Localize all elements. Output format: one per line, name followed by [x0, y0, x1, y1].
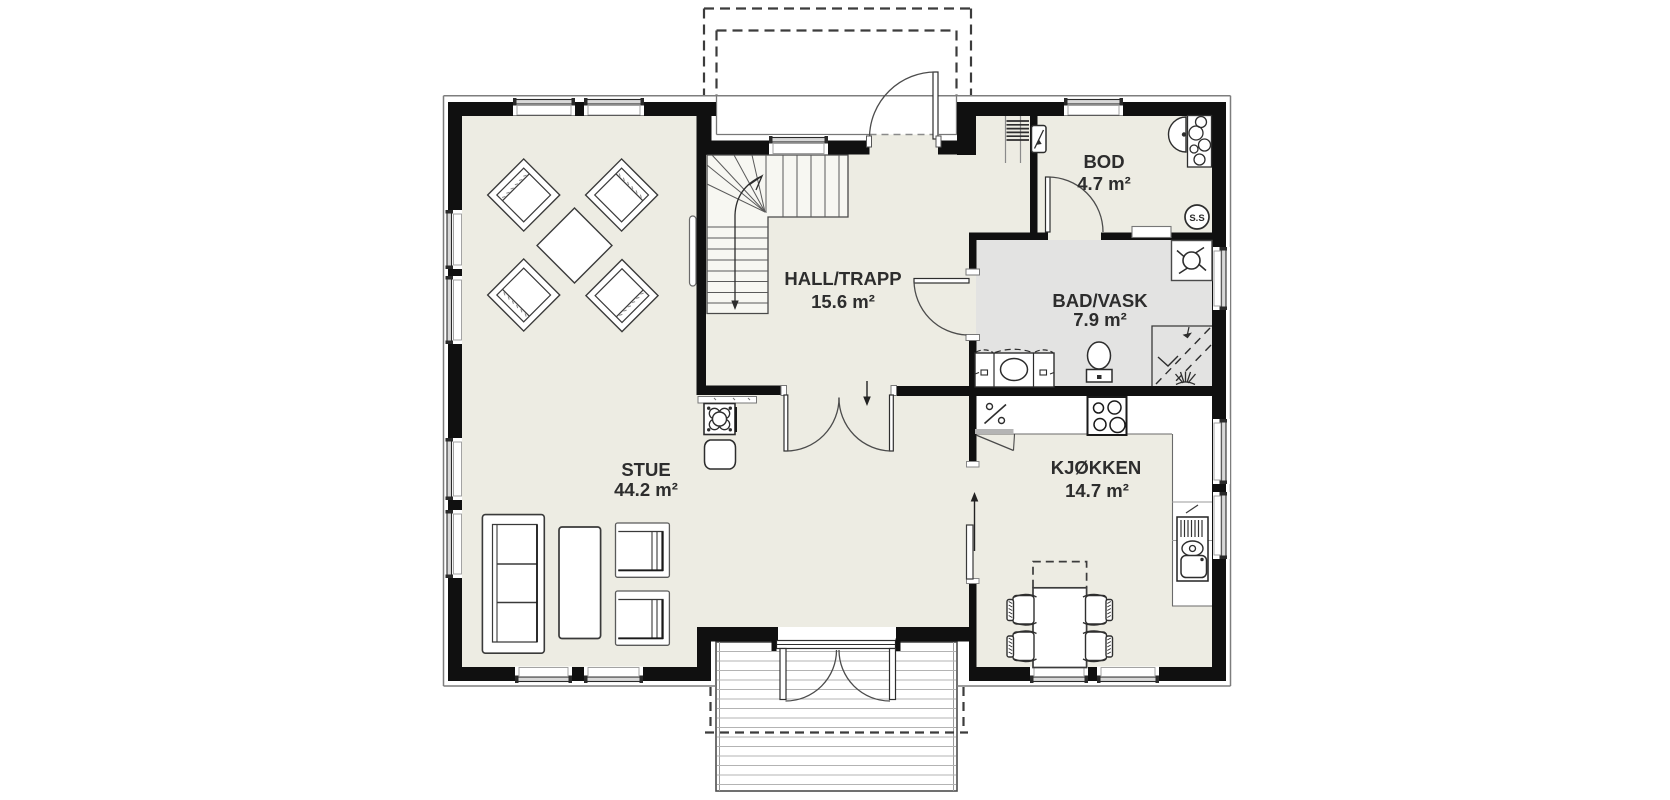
svg-text:44.2 m²: 44.2 m²	[614, 479, 678, 500]
svg-text:STUE: STUE	[621, 459, 670, 480]
svg-text:KJØKKEN: KJØKKEN	[1051, 457, 1141, 478]
svg-text:14.7 m²: 14.7 m²	[1065, 480, 1129, 501]
svg-text:BAD/VASK: BAD/VASK	[1052, 290, 1148, 311]
svg-text:15.6 m²: 15.6 m²	[811, 291, 875, 312]
svg-text:BOD: BOD	[1083, 151, 1124, 172]
svg-text:HALL/TRAPP: HALL/TRAPP	[784, 268, 901, 289]
svg-text:S.S: S.S	[1189, 213, 1204, 224]
svg-text:4.7 m²: 4.7 m²	[1077, 173, 1130, 194]
svg-text:7.9 m²: 7.9 m²	[1073, 309, 1126, 330]
